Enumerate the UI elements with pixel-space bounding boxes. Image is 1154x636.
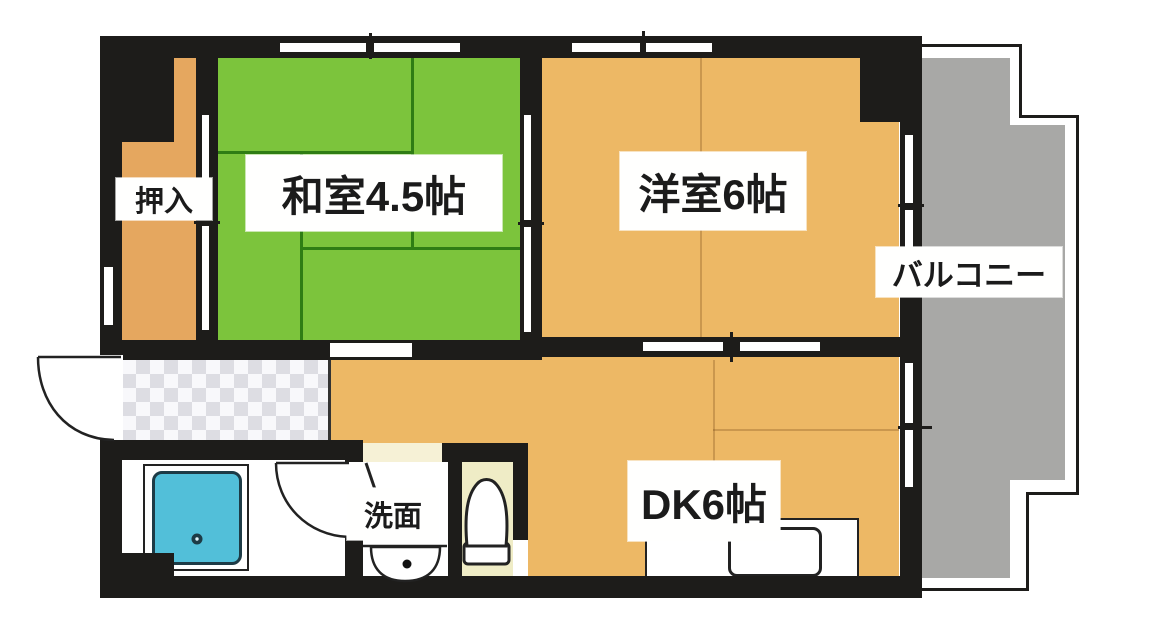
floor-seam: [713, 429, 899, 431]
window-washitsu-top-left: [280, 43, 366, 52]
slider-tick: [898, 204, 924, 207]
balcony-outline: [1026, 492, 1029, 591]
washitsu-dk-opening: [330, 343, 412, 357]
entrance-opening: [100, 355, 123, 440]
wall-toilet-top: [442, 443, 528, 462]
tatami-joint: [300, 247, 520, 250]
closet-floor-upper: [174, 58, 196, 142]
tatami-joint: [218, 151, 412, 154]
floor-plan: 押入 和室4.5帖 洋室6帖 バルコニー DK6帖 洗面: [0, 0, 1154, 636]
yoshitsu-dk-slider-left: [643, 342, 723, 351]
wall-washroom-toilet: [448, 443, 462, 576]
balcony-outline: [1076, 115, 1079, 495]
wall-bottom: [100, 576, 922, 598]
dk-balcony-door-lower: [905, 430, 913, 487]
wall-bath-washroom-lower: [345, 537, 363, 576]
dk-label: DK6帖: [628, 461, 780, 541]
fusuma-tick: [194, 221, 220, 224]
wall-corner-bottomleft: [122, 553, 174, 576]
wall-toilet-right: [513, 462, 528, 540]
washitsu-label: 和室4.5帖: [246, 155, 502, 231]
senmen-label: 洗面: [347, 488, 439, 540]
toilet-door-opening: [513, 540, 528, 573]
window-tick: [369, 33, 372, 59]
yoshitsu-label: 洋室6帖: [620, 152, 806, 230]
yoshitsu-balcony-door-upper: [905, 135, 913, 203]
balcony-floor-ext: [1010, 125, 1065, 480]
slider-tick: [730, 332, 733, 362]
wall-corner-topleft: [122, 36, 174, 142]
washroom-door-opening: [363, 443, 442, 462]
window-yoshitsu-top-right: [646, 43, 712, 52]
fusuma-tick: [518, 222, 544, 225]
washitsu-yoshitsu-fusuma-lower: [524, 227, 531, 332]
genkan-tile: [122, 360, 330, 440]
oshiire-label: 押入: [116, 178, 212, 220]
balcony-floor-main: [922, 58, 1010, 578]
wall-left-lower: [100, 440, 122, 598]
balcony-outline: [922, 588, 1029, 591]
balcony-outline: [1026, 492, 1079, 495]
washitsu-yoshitsu-fusuma-upper: [524, 115, 531, 220]
balcony-outline: [1019, 115, 1079, 118]
balcony-outline: [922, 44, 1022, 47]
wall-corner-topright: [860, 36, 922, 122]
closet-floor: [122, 142, 196, 342]
dk-balcony-door-upper: [905, 363, 913, 423]
toilet-floor: [462, 462, 513, 576]
balcony-label: バルコニー: [876, 247, 1062, 297]
window-tick: [642, 31, 645, 57]
window-yoshitsu-top-left: [572, 43, 640, 52]
bathtub: [152, 471, 242, 565]
slider-tick: [898, 426, 932, 429]
wall-bath-washroom-upper: [345, 440, 363, 462]
window-left-wall: [104, 267, 113, 325]
yoshitsu-dk-slider-right: [740, 342, 820, 351]
genkan-step-edge: [328, 360, 331, 440]
wall-genkan-bottom: [122, 440, 345, 460]
balcony-outline: [1019, 44, 1022, 118]
wall-top: [100, 36, 922, 58]
window-washitsu-top-right: [374, 43, 460, 52]
closet-fusuma-lower: [202, 226, 209, 330]
